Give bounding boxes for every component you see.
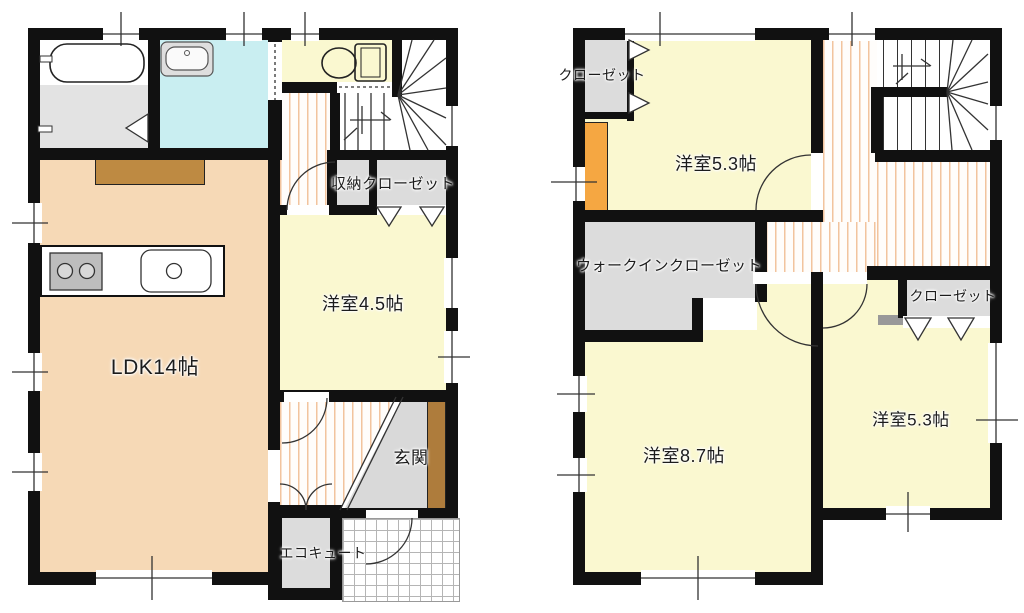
window <box>12 453 48 491</box>
linework-overlay <box>0 0 1024 613</box>
door-swing <box>823 272 867 328</box>
window <box>444 106 460 146</box>
accordion-door <box>337 82 392 93</box>
door-swing <box>287 162 335 215</box>
toilet-icon <box>322 44 386 81</box>
door-swing <box>282 392 329 443</box>
staircase-icon <box>344 40 446 150</box>
window <box>551 167 597 201</box>
walkin-closet-label: ウォークインクローゼット <box>576 255 762 276</box>
washbasin-icon <box>161 42 213 76</box>
western-room-87-label: 洋室8.7帖 <box>643 442 725 468</box>
ecocute-label: エコキュート <box>280 543 367 563</box>
ldk-label: LDK14帖 <box>111 351 199 381</box>
window <box>291 12 319 46</box>
window <box>12 203 48 243</box>
window <box>988 106 1004 140</box>
window <box>976 343 1018 443</box>
window <box>103 12 139 46</box>
closet-right-label: クローゼット <box>910 286 997 306</box>
closet-topleft-label: クローゼット <box>559 65 646 85</box>
stove-icon <box>50 253 102 290</box>
second-floor-linework <box>551 12 1018 600</box>
window <box>438 331 470 383</box>
window <box>829 12 875 46</box>
window <box>444 258 460 308</box>
window <box>12 353 48 391</box>
folding-door <box>377 205 446 226</box>
entrance-label: 玄関 <box>394 444 429 469</box>
window <box>886 492 930 532</box>
window <box>226 12 262 46</box>
window <box>625 12 755 46</box>
kitchen-sink-icon <box>141 250 211 292</box>
staircase-icon <box>893 40 988 150</box>
western-room-53-right-label: 洋室5.3帖 <box>872 406 950 431</box>
door-opening <box>268 450 280 502</box>
storage-closet-label: 収納クローゼット <box>331 173 455 194</box>
double-door-swing <box>280 484 332 510</box>
folding-door <box>903 316 990 340</box>
window <box>557 458 595 492</box>
bathtub-icon <box>38 44 148 142</box>
western-room-45-label: 洋室4.5帖 <box>322 290 404 316</box>
accordion-door <box>268 42 282 100</box>
door-swing <box>756 153 823 210</box>
window <box>557 376 595 412</box>
door-swing <box>753 272 818 346</box>
window <box>641 556 755 600</box>
front-door-swing <box>366 510 418 564</box>
window <box>96 556 212 600</box>
western-room-53-top-label: 洋室5.3帖 <box>675 150 757 176</box>
floor-plan-image: LDK14帖 洋室4.5帖 収納クローゼット 玄関 エコキュート クローゼット … <box>0 0 1024 613</box>
